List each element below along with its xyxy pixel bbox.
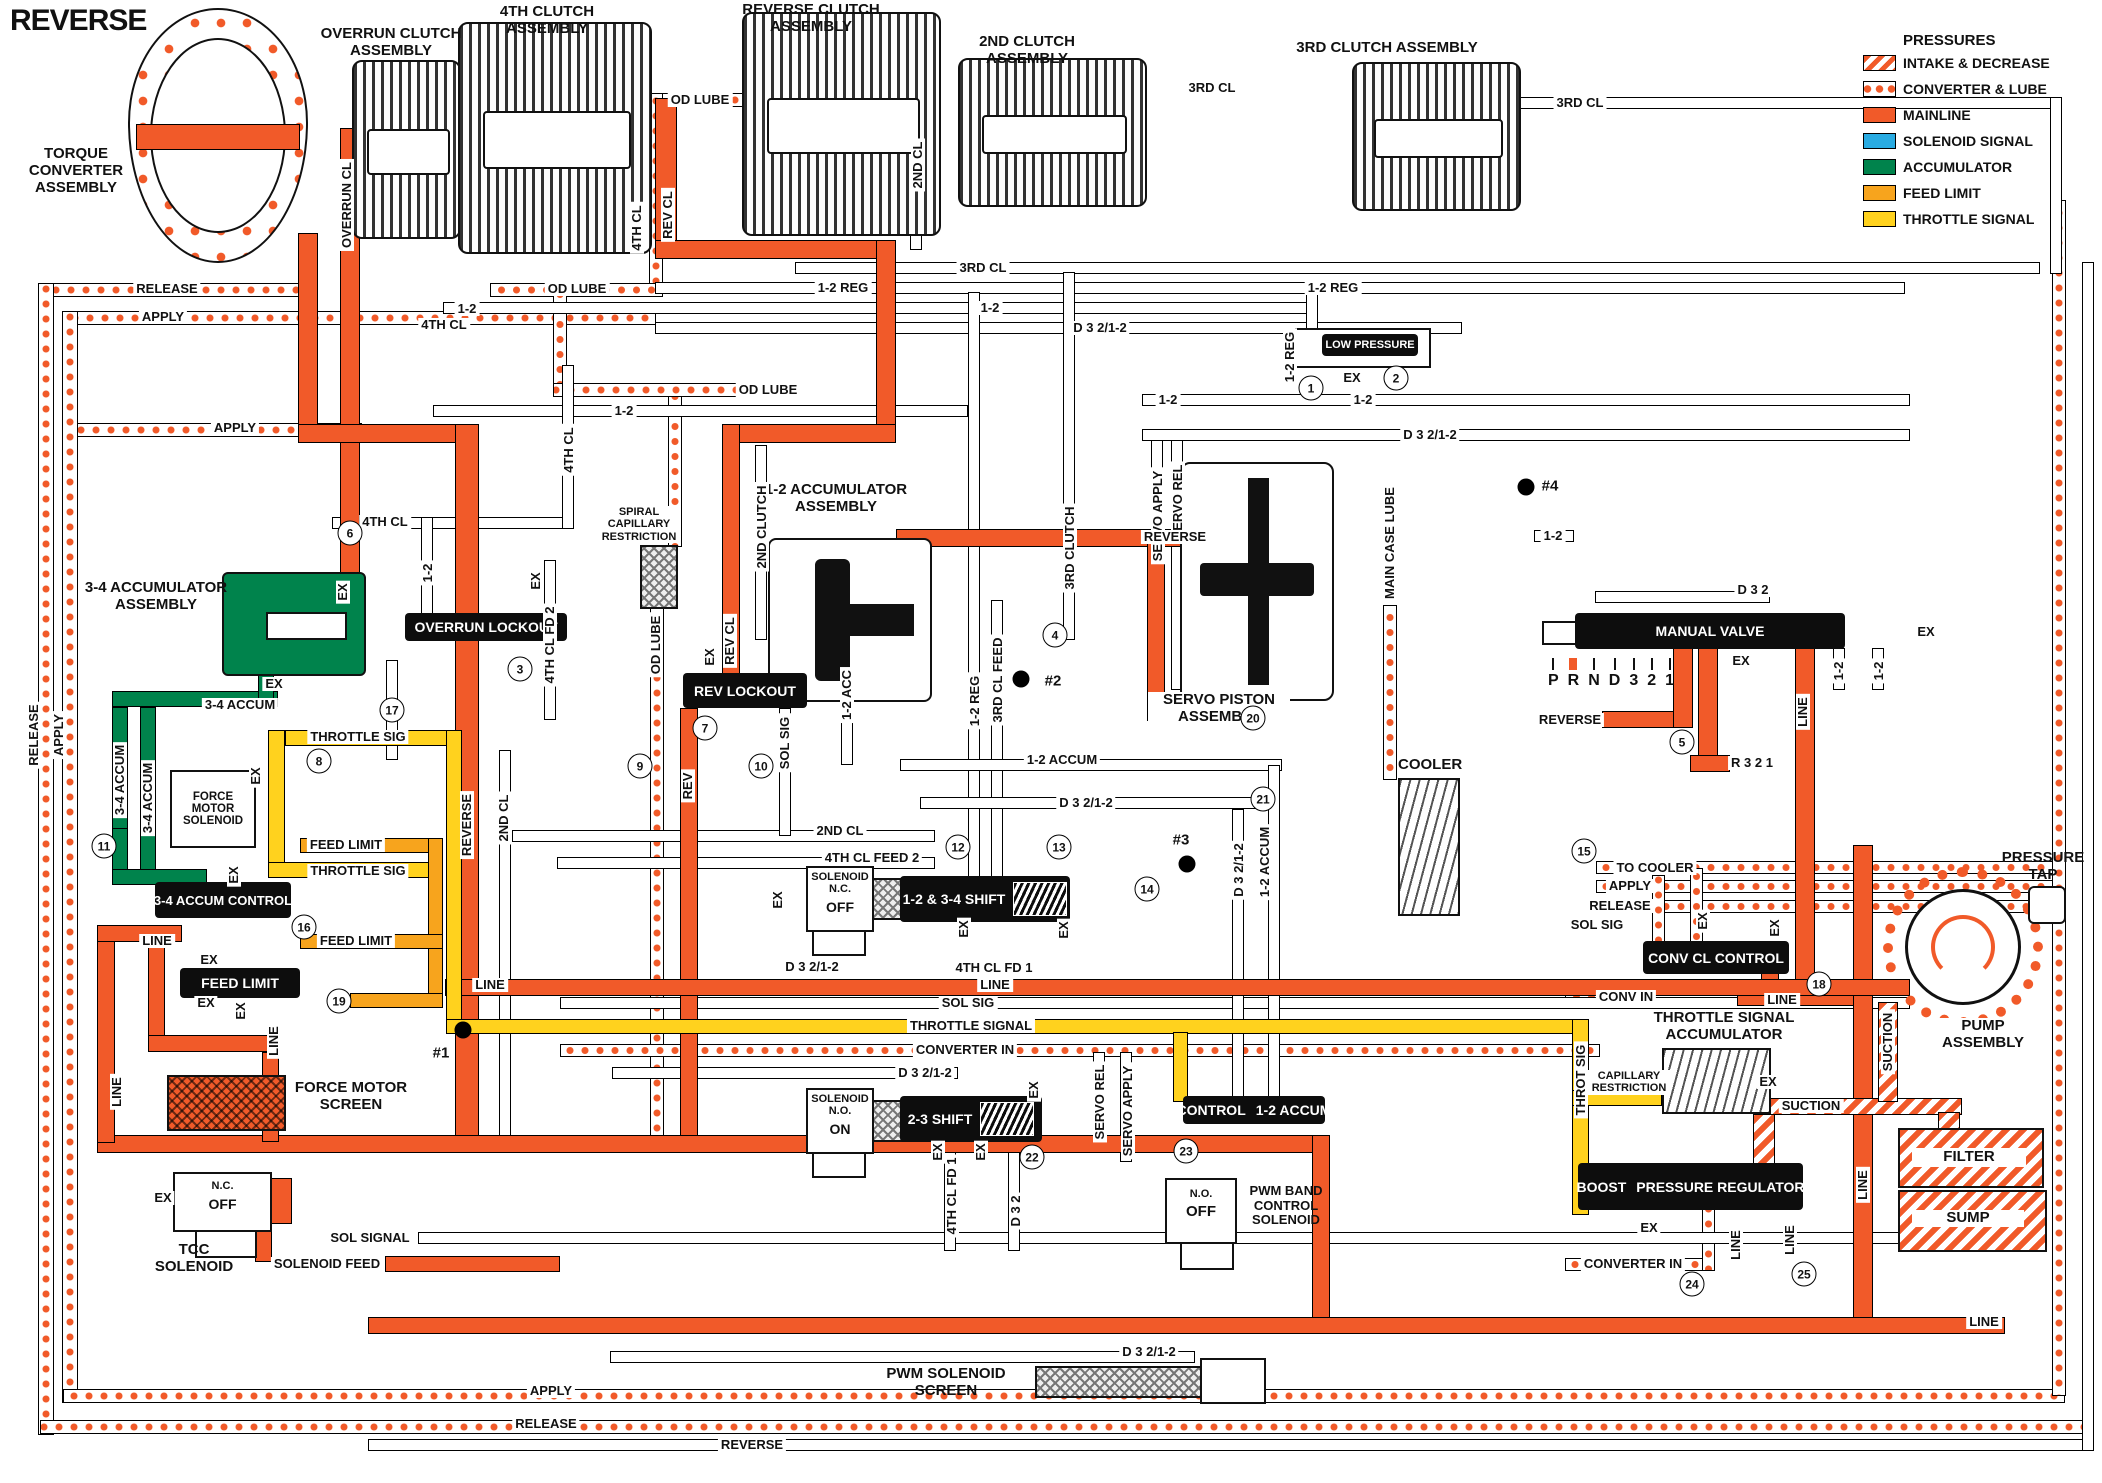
checkball-4 [1518,479,1535,496]
pipe-label: REV [681,770,695,803]
pipe-label: D 3 2/1-2 [1400,428,1459,442]
pipe-label: OD LUBE [649,613,663,678]
pipe-segment [350,993,443,1008]
pipe-label: 1-2 REG [1283,329,1297,386]
pipe-label: 1-2 [612,404,637,418]
pipe-segment [650,603,664,1143]
pipe-label: 1-2 REG [815,281,872,295]
pump-graphic [1883,867,2043,1027]
shift-23-valve: 2-3 SHIFT [900,1096,1042,1142]
circle-number-14: 14 [1135,877,1160,902]
circle-number-4: 4 [1043,623,1068,648]
pipe-segment [385,1256,560,1272]
nc-solenoid-body [812,928,866,956]
pipe-label: THROT SIG [1574,1042,1588,1119]
pipe-label: EX [1027,1078,1041,1101]
pipe-label: LINE [110,1074,124,1110]
pipe-label: OVERRUN CL [340,159,354,251]
pipe-label: SERVO APPLY [1121,1063,1135,1160]
pipe-label: THROTTLE SIGNAL [907,1019,1035,1033]
pipe-label: 4TH CL [359,515,411,529]
pipe-label: CONV IN [1596,990,1656,1004]
legend-item: SOLENOID SIGNAL [1863,133,2050,149]
legend-label: SOLENOID SIGNAL [1903,133,2033,149]
pressure-tap-graphic [2028,886,2066,924]
pipe-segment [553,383,739,397]
pipe-label: 2ND CL [814,824,867,838]
circle-number-25: 25 [1792,1262,1817,1287]
pipe-label: 4TH CL [562,424,576,476]
pipe-label: EX [336,580,350,603]
pipe-segment [1690,868,1703,945]
accum-34-label: 3-4 ACCUMULATOR ASSEMBLY [82,580,230,614]
pipe-label: 3-4 ACCUM [113,742,127,818]
pipe-label: D 3 2/1-2 [1232,840,1246,899]
spiral-capillary-graphic [640,545,678,609]
cooler-graphic [1398,778,1460,916]
pipe-label: 1-2 [1541,529,1566,543]
fourth-clutch-label: 4TH CLUTCH ASSEMBLY [458,4,636,38]
pipe-segment [418,1232,1908,1244]
pipe-label: 1-2 REG [1305,281,1362,295]
pipe-label: EX [249,764,263,787]
pipe-label: LINE [267,1023,281,1059]
pipe-label: REV CL [661,188,675,242]
legend-label: MAINLINE [1903,107,1971,123]
pipe-label: 1-2 [421,561,435,586]
legend-item: THROTTLE SIGNAL [1863,211,2050,227]
pipe-label: 4TH CL [418,318,470,332]
third-clutch-label: 3RD CLUTCH ASSEMBLY [1280,40,1494,57]
circle-number-6: 6 [338,521,363,546]
pipe-segment [298,424,463,443]
circle-number-3: 3 [508,657,533,682]
circle-number-5: 5 [1670,730,1695,755]
pipe-segment [368,1439,2090,1451]
pump-label: PUMP ASSEMBLY [1922,1018,2044,1052]
pwm-solenoid: N.O. OFF [1165,1178,1237,1244]
pipe-label: REV CL [723,614,737,668]
feed-swatch-icon [1863,185,1896,201]
circle-number-16: 16 [292,915,317,940]
pipe-label: LINE [472,978,508,992]
pipe-label: EX [974,1140,988,1163]
circle-number-2: 2 [1384,366,1409,391]
checkball-label: #4 [1540,478,1561,495]
pipe-segment [97,1135,1330,1153]
overrun-clutch-graphic [352,60,461,239]
third-clutch-graphic [1352,62,1521,211]
legend-label: CONVERTER & LUBE [1903,81,2047,97]
pipe-segment [2052,200,2066,1396]
checkball-2 [1013,671,1030,688]
pipe-segment [148,941,165,1041]
pipe-label: 3RD CL FEED [991,635,1005,726]
pipe-label: EX [194,996,217,1010]
pipe-label: SOLENOID FEED [271,1257,383,1271]
pipe-label: REVERSE [718,1438,786,1452]
pipe-label: REVERSE [1536,713,1604,727]
pipe-label: EX [1914,625,1937,639]
pwm-screen-label: PWM SOLENOID SCREEN [870,1366,1022,1400]
gear-position-1: 1 [1665,658,1674,690]
pipe-label: EX [262,677,285,691]
pipe-label: SOL SIG [1568,918,1627,932]
pipe-label: LINE [1796,694,1810,730]
pipe-label: SUCTION [1881,1010,1895,1075]
overrun-clutch-label: OVERRUN CLUTCH ASSEMBLY [320,26,462,60]
pipe-label: 4TH CL FD 2 [543,603,557,686]
pipe-label: D 3 2 [1734,583,1771,597]
pipe-label: EX [957,917,971,940]
pipe-label: EX [1756,1075,1779,1089]
pipe-label: EX [227,863,241,886]
pipe-segment [968,292,980,877]
circle-number-1: 1 [1299,376,1324,401]
manual-valve-positions: PRND321 [1548,658,1674,690]
pipe-segment [722,424,896,443]
throttle-accum-label: THROTTLE SIGNAL ACCUMULATOR [1638,1010,1810,1044]
pwm-band-solenoid-label: PWM BAND CONTROL SOLENOID [1236,1184,1336,1228]
circle-number-18: 18 [1807,972,1832,997]
pipe-segment [428,838,443,1008]
pipe-label: LINE [1966,1315,2002,1329]
force-motor-screen-graphic [167,1075,286,1131]
pipe-label: 3-4 ACCUM [202,698,278,712]
circle-number-9: 9 [628,754,653,779]
pipe-label: MAIN CASE LUBE [1383,484,1397,602]
circle-number-15: 15 [1572,839,1597,864]
circle-number-24: 24 [1680,1272,1705,1297]
pipe-label: FEED LIMIT [317,934,395,948]
pipe-segment [1673,648,1693,728]
pipe-segment [40,1420,2088,1434]
pipe-label: LINE [1856,1167,1870,1203]
pipe-label: EX [1729,654,1752,668]
pipe-label: LINE [139,934,175,948]
pipe-label: 4TH CL FD 1 [952,961,1035,975]
pipe-segment [1173,1032,1188,1102]
pipe-label: LINE [1764,993,1800,1007]
pipe-label: D 3 2/1-2 [1119,1345,1178,1359]
pipe-label: D 3 2/1-2 [1070,321,1129,335]
pipe-label: 1-2 [1872,659,1886,684]
circle-number-23: 23 [1174,1139,1199,1164]
pipe-label: 2ND CLUTCH [755,482,769,571]
pipe-segment [62,311,78,1403]
pipe-label: 4TH CL FD 1 [945,1154,959,1237]
circle-number-7: 7 [693,716,718,741]
pipe-label: 1-2 REG [968,673,982,730]
pipe-label: SOL SIGNAL [327,1231,412,1245]
pipe-label: OD LUBE [736,383,801,397]
boost-pressure-regulator-valve: BOOSTPRESSURE REGULATOR [1578,1163,1803,1210]
shift-12-34-valve: 1-2 & 3-4 SHIFT [900,876,1070,922]
legend-title: PRESSURES [1903,32,2050,49]
pipe-label: LINE [1729,1227,1743,1263]
legend-label: FEED LIMIT [1903,185,1981,201]
intake-swatch-icon [1863,55,1896,71]
tcc-solenoid-label: TCC SOLENOID [138,1242,250,1276]
pipe-segment [268,730,285,878]
legend-label: INTAKE & DECREASE [1903,55,2050,71]
pipe-label: EX [771,888,785,911]
pipe-label: 3RD CLUTCH [1063,503,1077,592]
legend-item: FEED LIMIT [1863,185,2050,201]
no-solenoid: SOLENOID N.O. ON [806,1088,874,1154]
fourth-clutch-graphic [458,22,652,254]
pipe-label: D 3 2 [1009,1192,1023,1229]
pipe-label: REVERSE [1141,530,1209,544]
second-clutch-graphic [958,58,1147,207]
no-solenoid-body [812,1150,866,1178]
pipe-label: EX [703,645,717,668]
pipe-segment [445,979,1910,996]
pipe-segment [148,1035,278,1052]
pipe-label: 3-4 ACCUM [141,760,155,836]
pipe-segment [38,283,54,1435]
control-12-accum-valve: CONTROL1-2 ACCUM [1183,1096,1325,1124]
pipe-label: 1-2 ACCUM [1258,824,1272,900]
conv-swatch-icon [1863,81,1896,97]
pipe-label: SERVO REL [1093,1062,1107,1143]
pipe-label: EX [1340,371,1363,385]
pipe-label: 4TH CL [630,202,644,254]
force-motor-solenoid-box: FORCE MOTOR SOLENOID [170,770,256,848]
circle-number-8: 8 [307,749,332,774]
pipe-label: LINE [977,978,1013,992]
second-clutch-label: 2ND CLUTCH ASSEMBLY [938,34,1116,68]
pipe-label: APPLY [527,1384,575,1398]
pipe-label: 3RD CL [957,261,1010,275]
legend-item: MAINLINE [1863,107,2050,123]
checkball-1 [455,1022,472,1039]
cooler-label: COOLER [1398,757,1458,774]
pipe-label: CONVERTER IN [913,1043,1017,1057]
circle-number-19: 19 [327,989,352,1014]
pipe-label: 1-2 [978,301,1003,315]
conv-cl-control-valve: CONV CL CONTROL [1643,941,1789,974]
accum-control-34-valve: 3-4 ACCUM CONTROL [155,882,291,918]
pwm-solenoid-body [1180,1240,1234,1270]
pipe-label: APPLY [1606,879,1654,893]
pipe-segment [876,240,896,436]
checkball-label: #3 [1171,832,1192,849]
pipe-label: EX [234,999,248,1022]
reverse-clutch-graphic [742,12,941,236]
pipe-label: 1-2 ACC [840,667,854,723]
torque-converter-graphic [128,8,308,263]
pipe-label: 1-2 [1832,659,1846,684]
pipe-segment [368,1317,2005,1334]
pipe-label: TO COOLER [1613,861,1696,875]
pipe-label: 2ND CL [911,139,925,192]
rev-lockout-valve: REV LOCKOUT [683,673,807,708]
pwm-screen-graphic [1035,1366,1204,1398]
pipe-label: 2ND CL [497,792,511,845]
pipe-segment [1383,605,1397,780]
pipe-label: EX [1696,909,1710,932]
pipe-segment [1312,1135,1330,1327]
gear-position-R: R [1568,658,1580,690]
pipe-label: 1-2 [1351,393,1376,407]
legend-item: CONVERTER & LUBE [1863,81,2050,97]
pipe-label: 3RD CL [1554,96,1607,110]
circle-number-10: 10 [749,754,774,779]
manual-valve: MANUAL VALVE [1575,613,1845,649]
throttle-swatch-icon [1863,211,1896,227]
sump-label: SUMP [1912,1210,2024,1227]
pipe-label: SUCTION [1779,1099,1844,1113]
page-title: REVERSE [10,4,146,38]
pipe-segment [446,730,462,1032]
pipe-segment [1698,648,1718,763]
pipe-segment [97,925,115,1143]
accum-swatch-icon [1863,159,1896,175]
pipe-label: APPLY [139,310,187,324]
pipe-label: REVERSE [460,791,474,859]
gear-position-2: 2 [1647,658,1656,690]
legend: PRESSURES INTAKE & DECREASECONVERTER & L… [1863,32,2050,237]
pipe-label: 3RD CL [1186,81,1239,95]
gear-position-3: 3 [1629,658,1638,690]
pipe-label: APPLY [52,711,66,759]
pipe-label: SERVO APPLY [1151,468,1165,565]
gear-position-P: P [1548,658,1559,690]
pipe-label: RELEASE [27,701,41,768]
legend-label: THROTTLE SIGNAL [1903,211,2034,227]
spiral-capillary-label: SPIRAL CAPILLARY RESTRICTION [598,506,680,543]
pipe-segment [1690,755,1730,772]
pipe-label: RELEASE [1586,899,1653,913]
pipe-label: D 3 2/1-2 [1056,796,1115,810]
pipe-label: SOL SIG [939,996,998,1010]
legend-item: ACCUMULATOR [1863,159,2050,175]
reverse-clutch-label: REVERSE CLUTCH ASSEMBLY [702,2,920,36]
pipe-label: EX [931,1140,945,1163]
pipe-label: OD LUBE [545,282,610,296]
pipe-label: D 3 2/1-2 [895,1066,954,1080]
pipe-label: CONVERTER IN [1581,1257,1685,1271]
legend-label: ACCUMULATOR [1903,159,2012,175]
force-motor-screen-label: FORCE MOTOR SCREEN [282,1080,420,1114]
pipe-label: 1-2 [455,302,480,316]
pipe-label: SOL SIG [778,714,792,773]
circle-number-12: 12 [946,835,971,860]
pipe-segment [1142,394,1910,406]
checkball-3 [1179,856,1196,873]
circle-number-13: 13 [1047,835,1072,860]
pipe-label: EX [1637,1221,1660,1235]
low-pressure-valve: LOW PRESSURE [1322,334,1418,356]
pipe-segment [655,240,895,259]
checkball-label: #1 [431,1045,452,1062]
pipe-label: THROTTLE SIG [307,730,408,744]
main-swatch-icon [1863,107,1896,123]
pipe-label: R 3 2 1 [1728,756,1776,770]
pipe-label: OD LUBE [668,93,733,107]
capillary-restriction-label: CAPILLARY RESTRICTION [1588,1070,1670,1095]
sol-swatch-icon [1863,133,1896,149]
pipe-label: 4TH CL FEED 2 [822,851,922,865]
pipe-label: 1-2 ACCUM [1024,753,1100,767]
pipe-segment [1142,429,1910,441]
pipe-label: FEED LIMIT [307,838,385,852]
pwm-screen-fitting [1200,1358,1266,1404]
circle-number-20: 20 [1241,706,1266,731]
pipe-segment [1268,765,1280,1098]
accum-12-label: 1-2 ACCUMULATOR ASSEMBLY [752,482,920,516]
pipe-label: APPLY [211,421,259,435]
servo-piston-label: SERVO PISTON ASSEMBLY [1148,692,1290,726]
pipe-label: EX [197,953,220,967]
servo-piston-graphic [1180,462,1334,701]
legend-item: INTAKE & DECREASE [1863,55,2050,71]
pipe-label: EX [1768,916,1782,939]
pipe-segment [560,1044,1600,1057]
pipe-label: EX [1057,918,1071,941]
filter-label: FILTER [1912,1148,2026,1167]
pipe-label: THROTTLE SIG [307,864,408,878]
pipe-label: EX [151,1191,174,1205]
nc-solenoid: SOLENOID N.C. OFF [806,866,874,932]
throttle-accum-graphic [1662,1048,1771,1114]
pipe-label: RELEASE [133,282,200,296]
pipe-label: RELEASE [512,1417,579,1431]
pipe-segment [512,830,935,842]
circle-number-11: 11 [92,834,117,859]
circle-number-21: 21 [1251,787,1276,812]
pipe-label: 1-2 [1156,393,1181,407]
circle-number-17: 17 [380,698,405,723]
pipe-label: EX [529,569,543,592]
gear-position-N: N [1588,658,1600,690]
pressure-tap-label: PRESSURE TAP [1992,850,2094,884]
torque-converter-label: TORQUE CONVERTER ASSEMBLY [0,146,152,196]
pipe-label: D 3 2/1-2 [782,960,841,974]
circle-number-22: 22 [1020,1145,1045,1170]
tcc-solenoid-box: N.C. OFF [173,1172,272,1232]
pipe-segment [610,1351,1195,1363]
gear-position-D: D [1609,658,1621,690]
pipe-segment [1853,845,1873,1323]
checkball-label: #2 [1043,673,1064,690]
pipe-segment [2050,97,2062,274]
pipe-label: LINE [1783,1222,1797,1258]
reverse-hydraulic-diagram: REVERSE [0,0,2102,1483]
feed-limit-valve: FEED LIMIT [180,968,300,998]
